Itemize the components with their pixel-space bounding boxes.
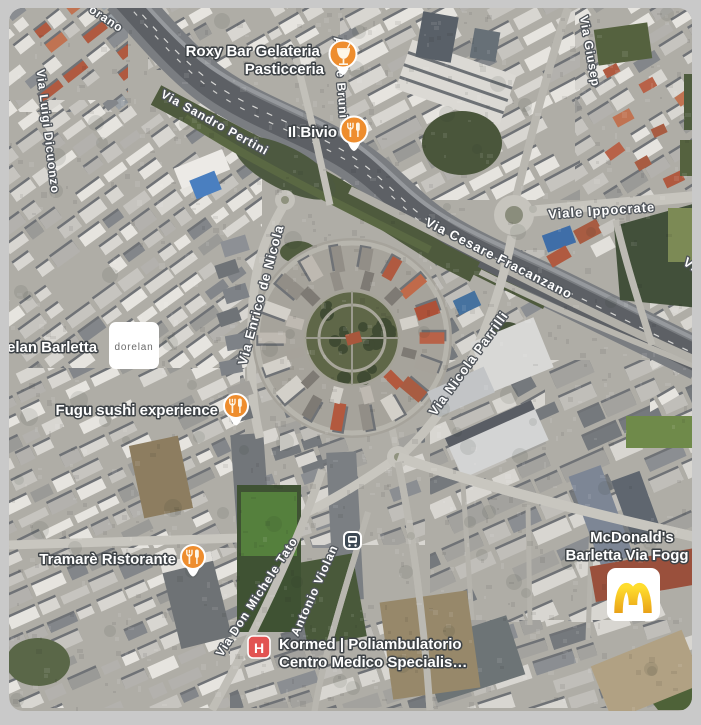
svg-text:H: H [254,640,264,656]
svg-text:dorelan: dorelan [115,342,154,353]
svg-text:Tramarè Ristorante: Tramarè Ristorante [39,551,176,568]
svg-text:Fugu sushi experience: Fugu sushi experience [55,402,218,419]
svg-text:Il Bivio: Il Bivio [288,124,337,141]
svg-text:elan Barletta: elan Barletta [7,339,98,356]
svg-text:Kormed | Poliambulatorio Centr: Kormed | Poliambulatorio Centro Medico S… [279,636,467,671]
